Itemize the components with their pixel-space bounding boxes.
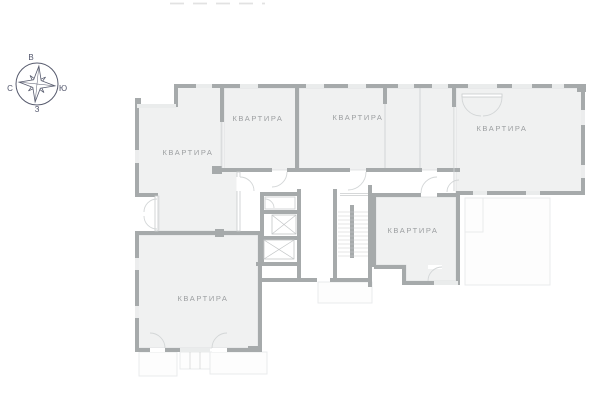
compass-letter-right: Ю xyxy=(59,84,67,93)
apartment-label-4: КВАРТИРА xyxy=(476,124,527,133)
apartment-room-4 xyxy=(456,88,582,193)
compass-letter-bottom: З xyxy=(35,105,40,114)
porch-outline-middle xyxy=(180,352,210,369)
compass-letter-left: С xyxy=(7,84,13,93)
floor-plan: КВАРТИРА КВАРТИРА КВАРТИРА КВАРТИРА КВАР… xyxy=(0,0,600,400)
entrance-porch-outline xyxy=(318,282,372,303)
apartment-room-3 xyxy=(299,88,454,170)
apartment-label-5: КВАРТИРА xyxy=(387,226,438,235)
apartment-label-6: КВАРТИРА xyxy=(177,294,228,303)
elevator-shaft-2 xyxy=(264,240,294,259)
balcony-outline-left xyxy=(139,352,177,376)
apartment-label-1: КВАРТИРА xyxy=(162,148,213,157)
compass-rose: В Ю З С xyxy=(7,53,67,114)
apartment-label-3: КВАРТИРА xyxy=(332,113,383,122)
compass-letter-top: В xyxy=(28,53,33,62)
apartment-label-2: КВАРТИРА xyxy=(232,114,283,123)
apartment-room-6 xyxy=(137,235,258,348)
terrace-corner-outline xyxy=(465,198,483,232)
floor-plan-canvas: КВАРТИРА КВАРТИРА КВАРТИРА КВАРТИРА КВАР… xyxy=(0,0,600,400)
elevator-shaft-1 xyxy=(272,215,296,234)
balcony-outline-right xyxy=(210,352,267,374)
apartment-room-2 xyxy=(224,88,297,170)
compass-star-icon xyxy=(17,64,57,104)
